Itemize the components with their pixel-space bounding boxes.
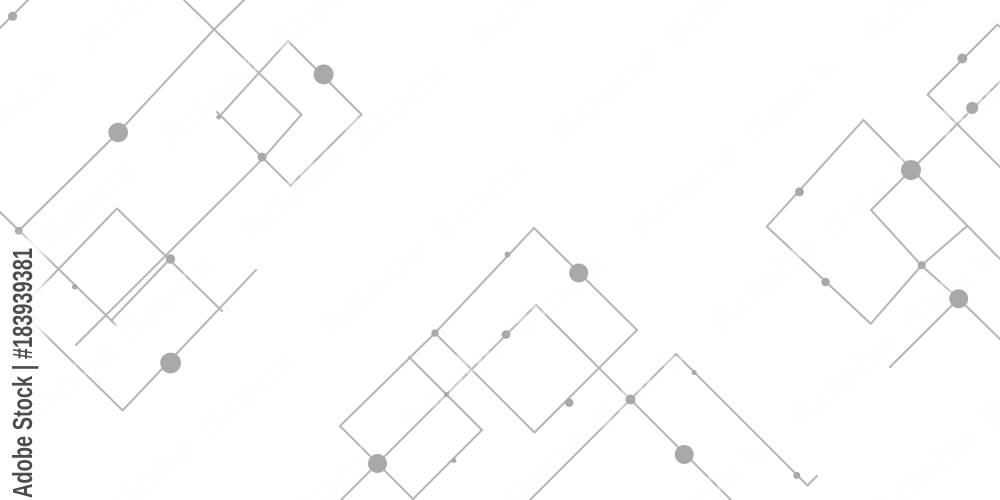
svg-text:Adobe Stock | #183939381: Adobe Stock | #183939381 (7, 248, 38, 498)
